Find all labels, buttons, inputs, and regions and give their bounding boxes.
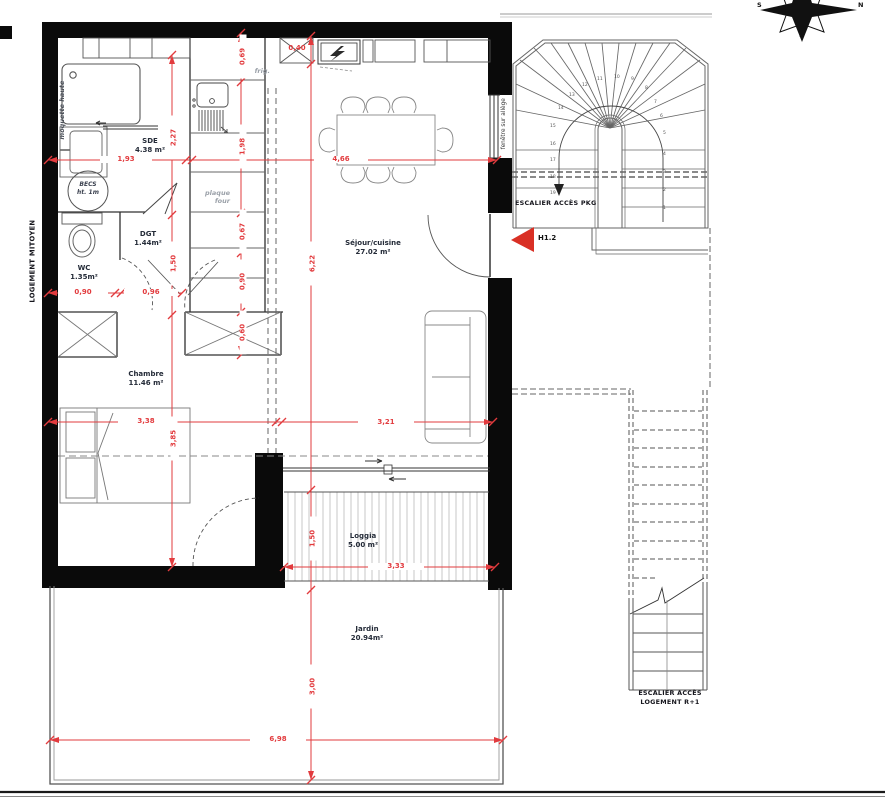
electrical-panel xyxy=(318,40,360,71)
compass-north: N xyxy=(858,1,863,9)
step-number: 7 xyxy=(654,100,657,105)
dim-dgt-height: 1,50 xyxy=(171,242,178,286)
room-name: SDE xyxy=(124,137,176,146)
step-number: 14 xyxy=(558,106,564,111)
dim-chambre-width: 3,38 xyxy=(118,418,174,425)
room-label-dgt: DGT 1.44m² xyxy=(120,230,176,248)
room-name: WC xyxy=(60,264,108,273)
dim-sde-width: 1,93 xyxy=(100,156,152,163)
escalier-r1-label: ESCALIER ACCÈS LOGEMENT R+1 xyxy=(628,689,712,706)
step-number: 8 xyxy=(645,86,648,91)
room-area: 1.35m² xyxy=(60,273,108,282)
floor-plan: SDE 4.38 m² WC 1.35m² DGT 1.44m² Chambre… xyxy=(0,0,885,800)
step-number: 3 xyxy=(663,170,666,175)
dim-loggia-height: 1,50 xyxy=(310,517,317,561)
kitchen-sink xyxy=(193,83,228,132)
step-number: 13 xyxy=(569,93,575,98)
step-number: 15 xyxy=(550,124,556,129)
step-number: 18 xyxy=(550,175,556,180)
stair-r1 xyxy=(629,390,707,690)
entry-ref-label: H1.2 xyxy=(538,234,556,242)
compass-main-star xyxy=(760,0,857,42)
dim-sde-height: 2,27 xyxy=(171,116,178,160)
dim-jardin-width: 6,98 xyxy=(250,736,306,743)
room-name: Loggia xyxy=(332,532,394,541)
dim-kitchen-low3: 0,60 xyxy=(240,311,247,355)
dim-jardin-height: 3,00 xyxy=(310,665,317,709)
boundary-lines xyxy=(0,14,885,797)
sliding-door-sde xyxy=(96,121,158,129)
becs-label: BECS ht. 1m xyxy=(66,181,110,198)
room-name: DGT xyxy=(120,230,176,239)
shower xyxy=(62,64,140,124)
room-label-sde: SDE 4.38 m² xyxy=(124,137,176,155)
step-number: 12 xyxy=(582,83,588,88)
room-label-jardin: Jardin 20.94m² xyxy=(336,625,398,643)
dim-sejour-width-low: 3,21 xyxy=(358,419,414,426)
plaque-four-label: plaque four xyxy=(194,189,230,205)
step-number: 16 xyxy=(550,142,556,147)
room-label-loggia: Loggia 5.00 m² xyxy=(332,532,394,550)
dim-loggia-width: 3,33 xyxy=(368,563,424,570)
step-number: 6 xyxy=(660,114,663,119)
step-number: 1 xyxy=(663,206,666,211)
step-number: 10 xyxy=(614,75,620,80)
stair-pkg xyxy=(513,40,708,254)
step-number: 2 xyxy=(663,188,666,193)
dim-kitchen-low2: 0,90 xyxy=(240,260,247,304)
room-area: 1.44m² xyxy=(120,239,176,248)
room-area: 11.46 m² xyxy=(110,379,182,388)
room-area: 27.02 m² xyxy=(337,248,409,257)
compass-east: E xyxy=(798,29,806,41)
chambre-door-arc xyxy=(193,498,259,566)
room-area: 20.94m² xyxy=(336,634,398,643)
room-name: Séjour/cuisine xyxy=(337,239,409,248)
logement-mitoyen-label: LOGEMENT MITOYEN xyxy=(28,229,37,303)
dim-dgt-width: 0,96 xyxy=(124,289,178,296)
dim-chambre-height: 3,85 xyxy=(171,417,178,461)
dim-kitchen-mid: 1,98 xyxy=(240,125,247,169)
dim-sejour-height: 6,22 xyxy=(310,242,317,286)
room-name: Chambre xyxy=(110,370,182,379)
dim-niche-height: 0,40 xyxy=(281,45,313,52)
step-number: 19 xyxy=(550,191,556,196)
room-area: 4.38 m² xyxy=(124,146,176,155)
step-number: 4 xyxy=(663,152,666,157)
entry-marker-triangle xyxy=(511,227,534,252)
toilet xyxy=(62,213,102,257)
entry-door-arc xyxy=(428,215,490,277)
compass-rose xyxy=(760,0,857,42)
washbasin xyxy=(60,127,107,177)
moquette-haute-label: moquette haute xyxy=(58,72,66,148)
dim-kitchen-low: 0,67 xyxy=(240,210,247,254)
room-label-sejour: Séjour/cuisine 27.02 m² xyxy=(337,239,409,257)
escalier-pkg-label: ESCALIER ACCÈS PKG xyxy=(515,199,593,208)
dim-kitchen-top: 0,69 xyxy=(240,35,247,79)
kitchen-counter xyxy=(190,80,265,278)
step-number: 9 xyxy=(631,77,634,82)
dim-wc-width: 0,90 xyxy=(58,289,108,296)
compass-south: S xyxy=(757,1,762,9)
dim-sejour-width-top: 4,66 xyxy=(314,156,368,163)
room-area: 5.00 m² xyxy=(332,541,394,550)
room-label-chambre: Chambre 11.46 m² xyxy=(110,370,182,388)
step-number: 11 xyxy=(597,77,603,82)
plan-drawing xyxy=(0,0,885,800)
fenetre-allege-label: fenêtre sur allège xyxy=(501,91,509,157)
room-label-wc: WC 1.35m² xyxy=(60,264,108,282)
garden-fence xyxy=(50,586,503,784)
room-name: Jardin xyxy=(336,625,398,634)
step-number: 17 xyxy=(550,158,556,163)
step-number: 5 xyxy=(663,131,666,136)
sliding-door-loggia xyxy=(283,459,490,481)
couch xyxy=(425,311,486,443)
window-fenetre xyxy=(488,95,500,158)
